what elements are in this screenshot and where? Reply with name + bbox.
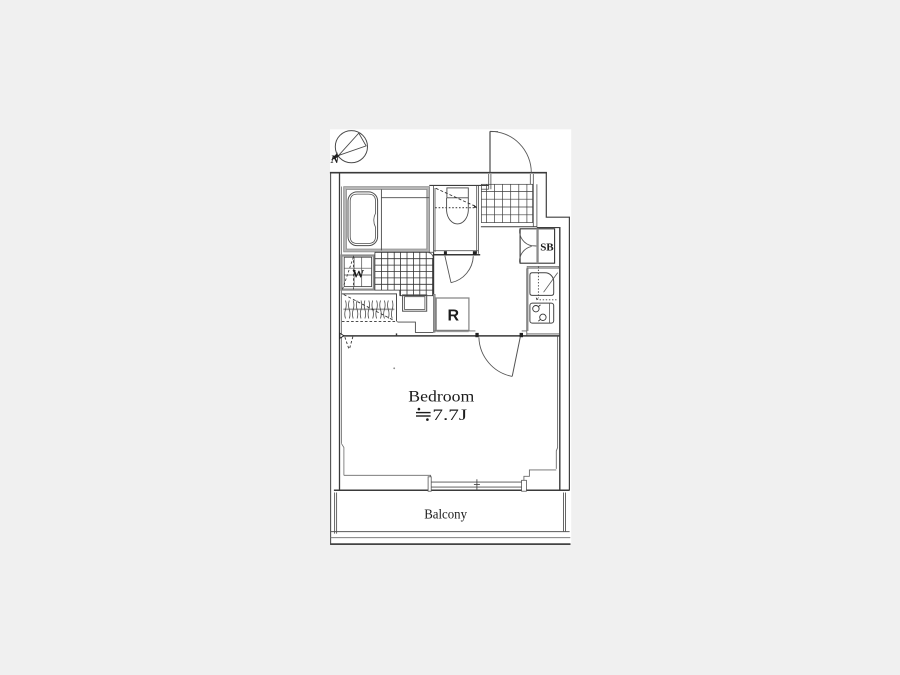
svg-text:W: W <box>352 266 364 280</box>
svg-text:7.7J: 7.7J <box>432 407 467 424</box>
svg-text:Bedroom: Bedroom <box>408 389 475 406</box>
svg-text:Balcony: Balcony <box>424 507 467 522</box>
svg-text:R: R <box>448 308 460 325</box>
svg-text:N: N <box>330 152 341 166</box>
svg-text:SB: SB <box>540 241 554 253</box>
